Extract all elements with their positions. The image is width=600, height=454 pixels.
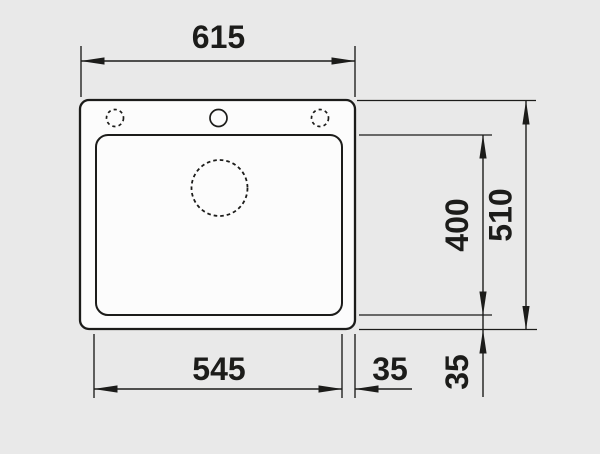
dim-label-right-edge-gap: 35 <box>372 351 408 387</box>
sink-dimension-diagram: 615 510 400 545 35 <box>0 0 600 454</box>
dim-label-overall-width: 615 <box>192 19 245 55</box>
dim-label-bottom-edge-gap: 35 <box>439 354 475 390</box>
dim-bowl-width: 545 <box>94 334 342 398</box>
dim-bottom-edge-gap: 35 <box>439 315 483 397</box>
dim-bowl-height: 400 <box>359 135 492 315</box>
dim-right-edge-gap: 35 <box>342 334 412 398</box>
dim-label-bowl-width: 545 <box>192 351 245 387</box>
dim-overall-width: 615 <box>81 19 355 97</box>
dim-label-bowl-height: 400 <box>439 198 475 251</box>
dim-label-overall-height: 510 <box>483 188 519 241</box>
diagram-svg: 615 510 400 545 35 <box>0 0 600 454</box>
